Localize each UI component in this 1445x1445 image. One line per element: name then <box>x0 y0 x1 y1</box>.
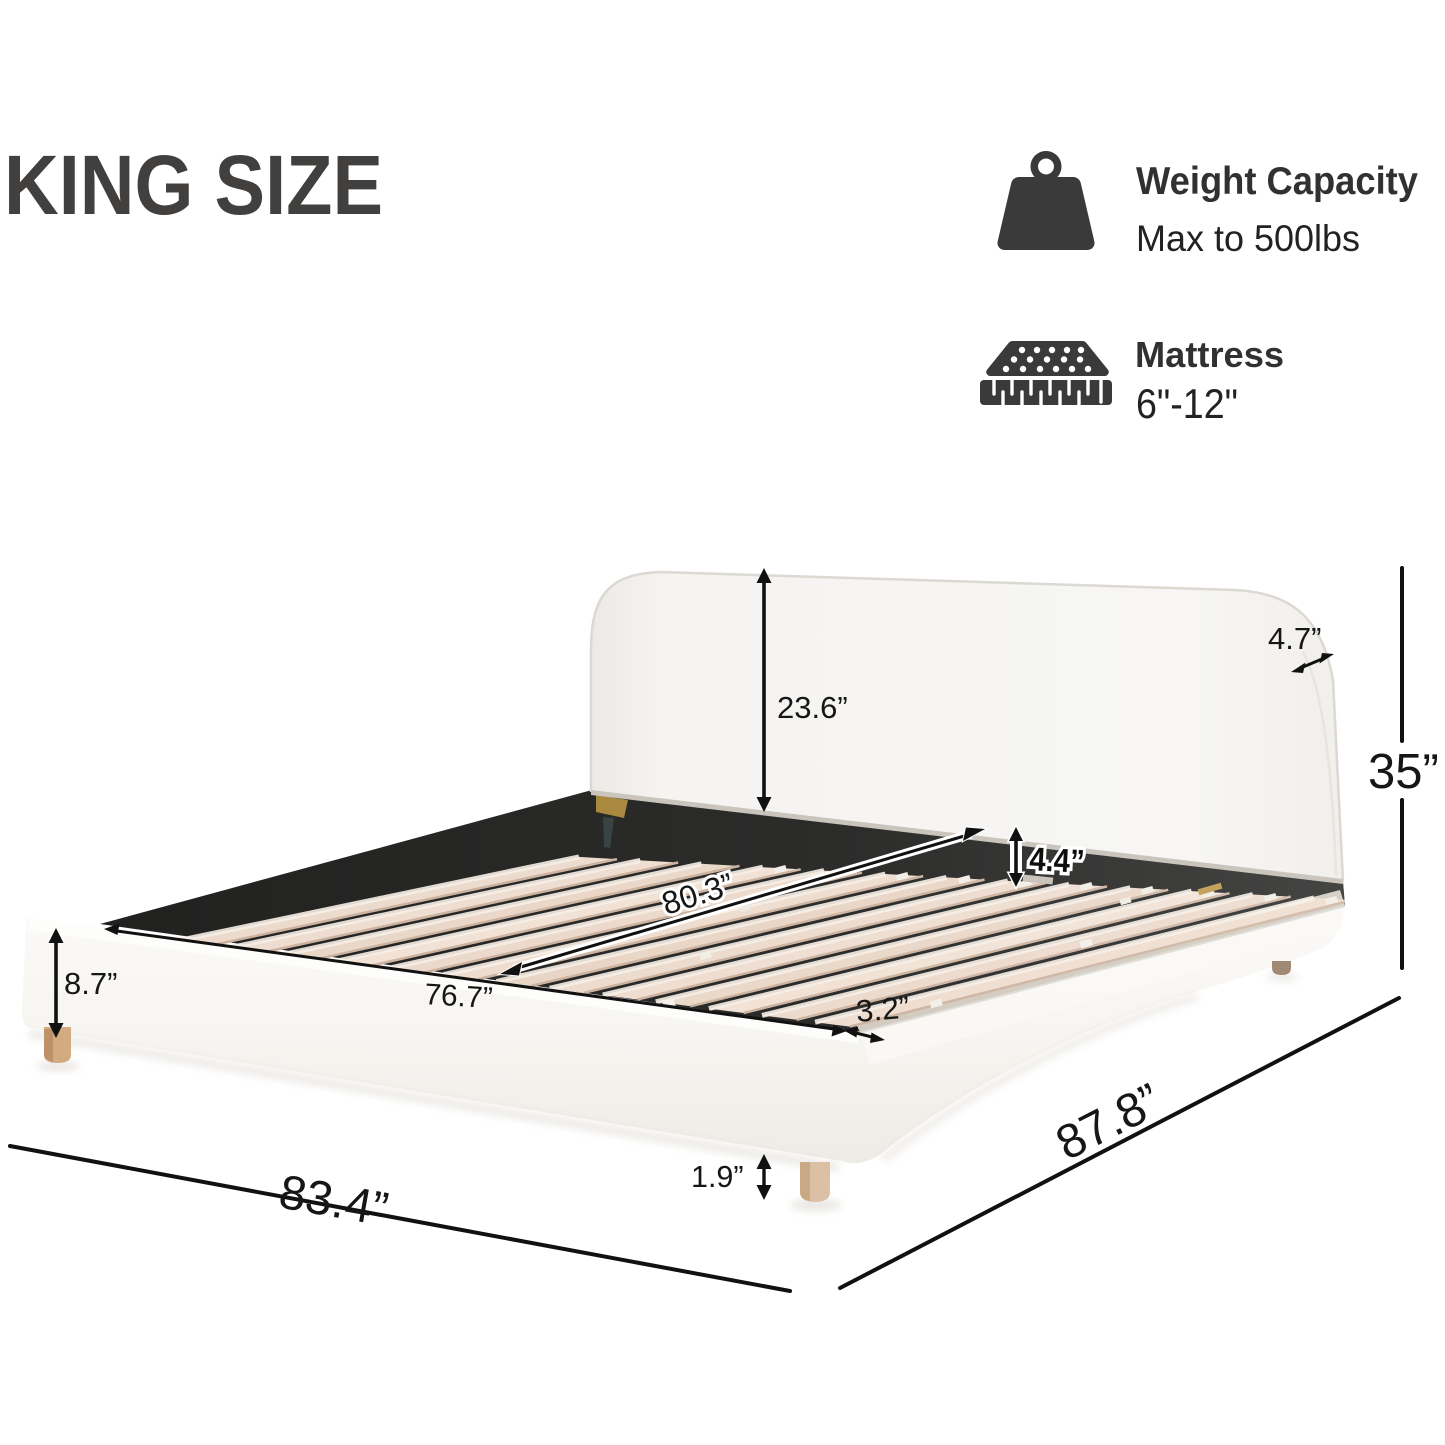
svg-text:3.2”: 3.2” <box>855 989 911 1029</box>
svg-text:4.7”: 4.7” <box>1268 621 1321 656</box>
svg-text:Weight Capacity: Weight Capacity <box>1136 160 1419 203</box>
svg-text:Mattress: Mattress <box>1135 334 1284 375</box>
svg-text:35”: 35” <box>1368 745 1439 799</box>
svg-text:4.4”: 4.4” <box>1029 840 1086 880</box>
svg-text:1.9”: 1.9” <box>691 1160 744 1194</box>
svg-text:8.7”: 8.7” <box>64 966 117 1001</box>
svg-text:76.7”: 76.7” <box>424 978 494 1015</box>
svg-text:Max to 500lbs: Max to 500lbs <box>1136 218 1360 259</box>
svg-text:6"-12": 6"-12" <box>1136 380 1238 427</box>
svg-text:KING SIZE: KING SIZE <box>4 138 383 232</box>
svg-text:23.6”: 23.6” <box>777 690 848 725</box>
